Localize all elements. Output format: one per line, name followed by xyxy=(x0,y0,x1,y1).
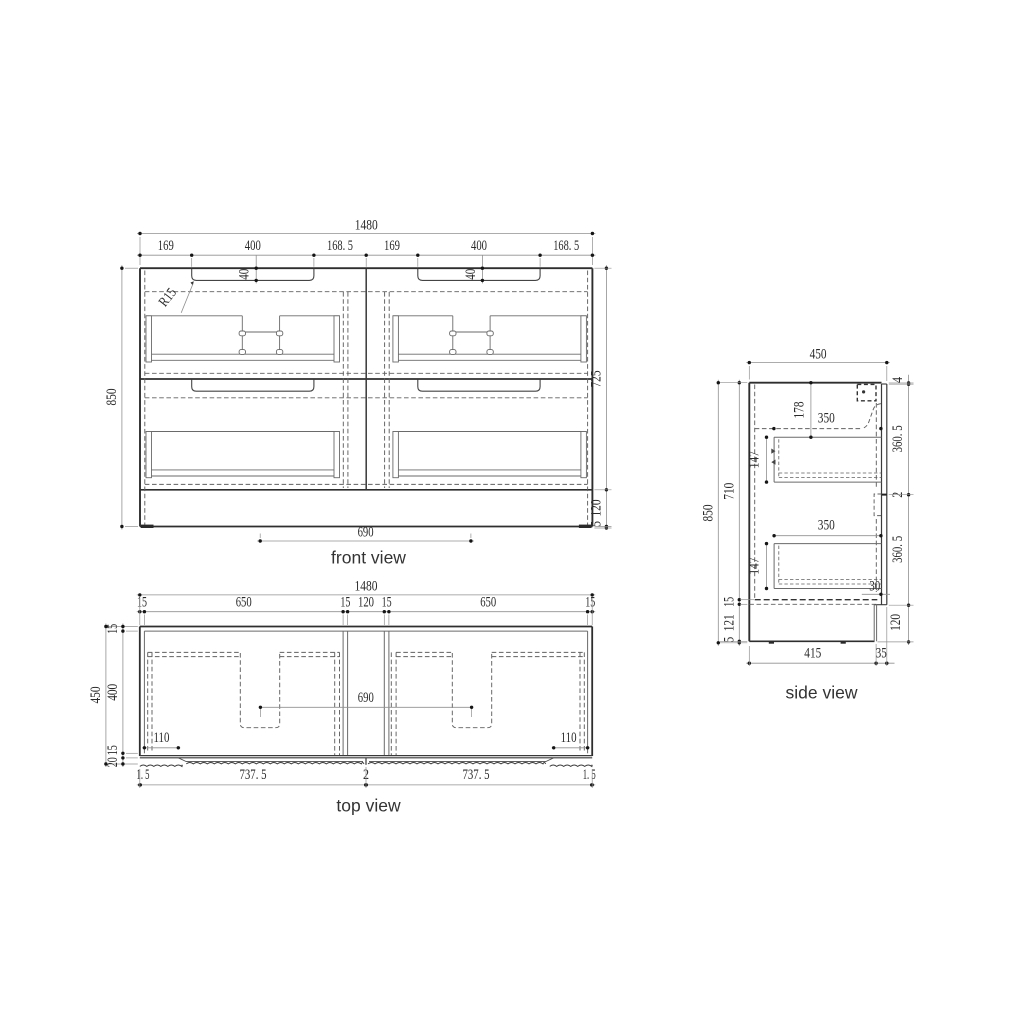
svg-text:147: 147 xyxy=(747,451,763,468)
svg-text:737. 5: 737. 5 xyxy=(463,767,490,783)
svg-text:15: 15 xyxy=(137,595,147,611)
svg-text:1. 5: 1. 5 xyxy=(583,767,596,783)
svg-text:5: 5 xyxy=(589,521,605,527)
svg-text:147: 147 xyxy=(747,558,763,575)
svg-text:737. 5: 737. 5 xyxy=(240,767,267,783)
svg-text:169: 169 xyxy=(158,238,174,254)
svg-text:1480: 1480 xyxy=(355,579,378,595)
svg-text:30: 30 xyxy=(869,578,880,594)
svg-text:121: 121 xyxy=(722,614,738,631)
svg-text:120: 120 xyxy=(589,500,605,517)
svg-text:400: 400 xyxy=(105,684,121,701)
svg-text:650: 650 xyxy=(480,595,496,611)
svg-text:side view: side view xyxy=(786,683,858,703)
svg-text:415: 415 xyxy=(804,645,821,661)
svg-text:15: 15 xyxy=(585,595,595,611)
svg-text:40: 40 xyxy=(463,269,479,280)
svg-text:168. 5: 168. 5 xyxy=(327,238,353,254)
svg-text:850: 850 xyxy=(104,389,120,406)
svg-text:1. 5: 1. 5 xyxy=(137,767,150,783)
svg-text:178: 178 xyxy=(792,402,808,419)
svg-text:450: 450 xyxy=(810,346,827,362)
svg-text:120: 120 xyxy=(888,614,904,631)
svg-text:360. 5: 360. 5 xyxy=(890,536,906,563)
svg-text:400: 400 xyxy=(471,238,487,254)
svg-text:4: 4 xyxy=(890,377,906,383)
svg-text:5: 5 xyxy=(722,637,738,643)
svg-text:120: 120 xyxy=(358,595,374,611)
svg-text:690: 690 xyxy=(358,524,374,540)
svg-text:15: 15 xyxy=(382,595,392,611)
svg-text:15: 15 xyxy=(105,745,121,755)
svg-text:40: 40 xyxy=(237,269,253,280)
svg-text:20: 20 xyxy=(105,757,121,767)
svg-text:710: 710 xyxy=(722,483,738,500)
svg-text:1480: 1480 xyxy=(355,217,378,233)
svg-text:15: 15 xyxy=(105,624,121,634)
svg-text:110: 110 xyxy=(561,730,577,746)
svg-text:15: 15 xyxy=(340,595,350,611)
svg-text:360. 5: 360. 5 xyxy=(890,425,906,452)
svg-text:35: 35 xyxy=(876,645,887,661)
svg-text:top view: top view xyxy=(336,796,401,816)
svg-text:650: 650 xyxy=(236,595,252,611)
svg-text:450: 450 xyxy=(88,687,104,704)
svg-text:110: 110 xyxy=(154,730,170,746)
svg-text:350: 350 xyxy=(818,410,835,426)
svg-text:168. 5: 168. 5 xyxy=(553,238,579,254)
svg-text:350: 350 xyxy=(818,517,835,533)
svg-text:15: 15 xyxy=(722,597,738,607)
svg-text:169: 169 xyxy=(384,238,400,254)
svg-text:front view: front view xyxy=(331,548,406,568)
svg-text:850: 850 xyxy=(700,505,716,522)
svg-text:690: 690 xyxy=(358,690,374,706)
svg-text:400: 400 xyxy=(245,238,261,254)
svg-text:725: 725 xyxy=(589,371,605,388)
